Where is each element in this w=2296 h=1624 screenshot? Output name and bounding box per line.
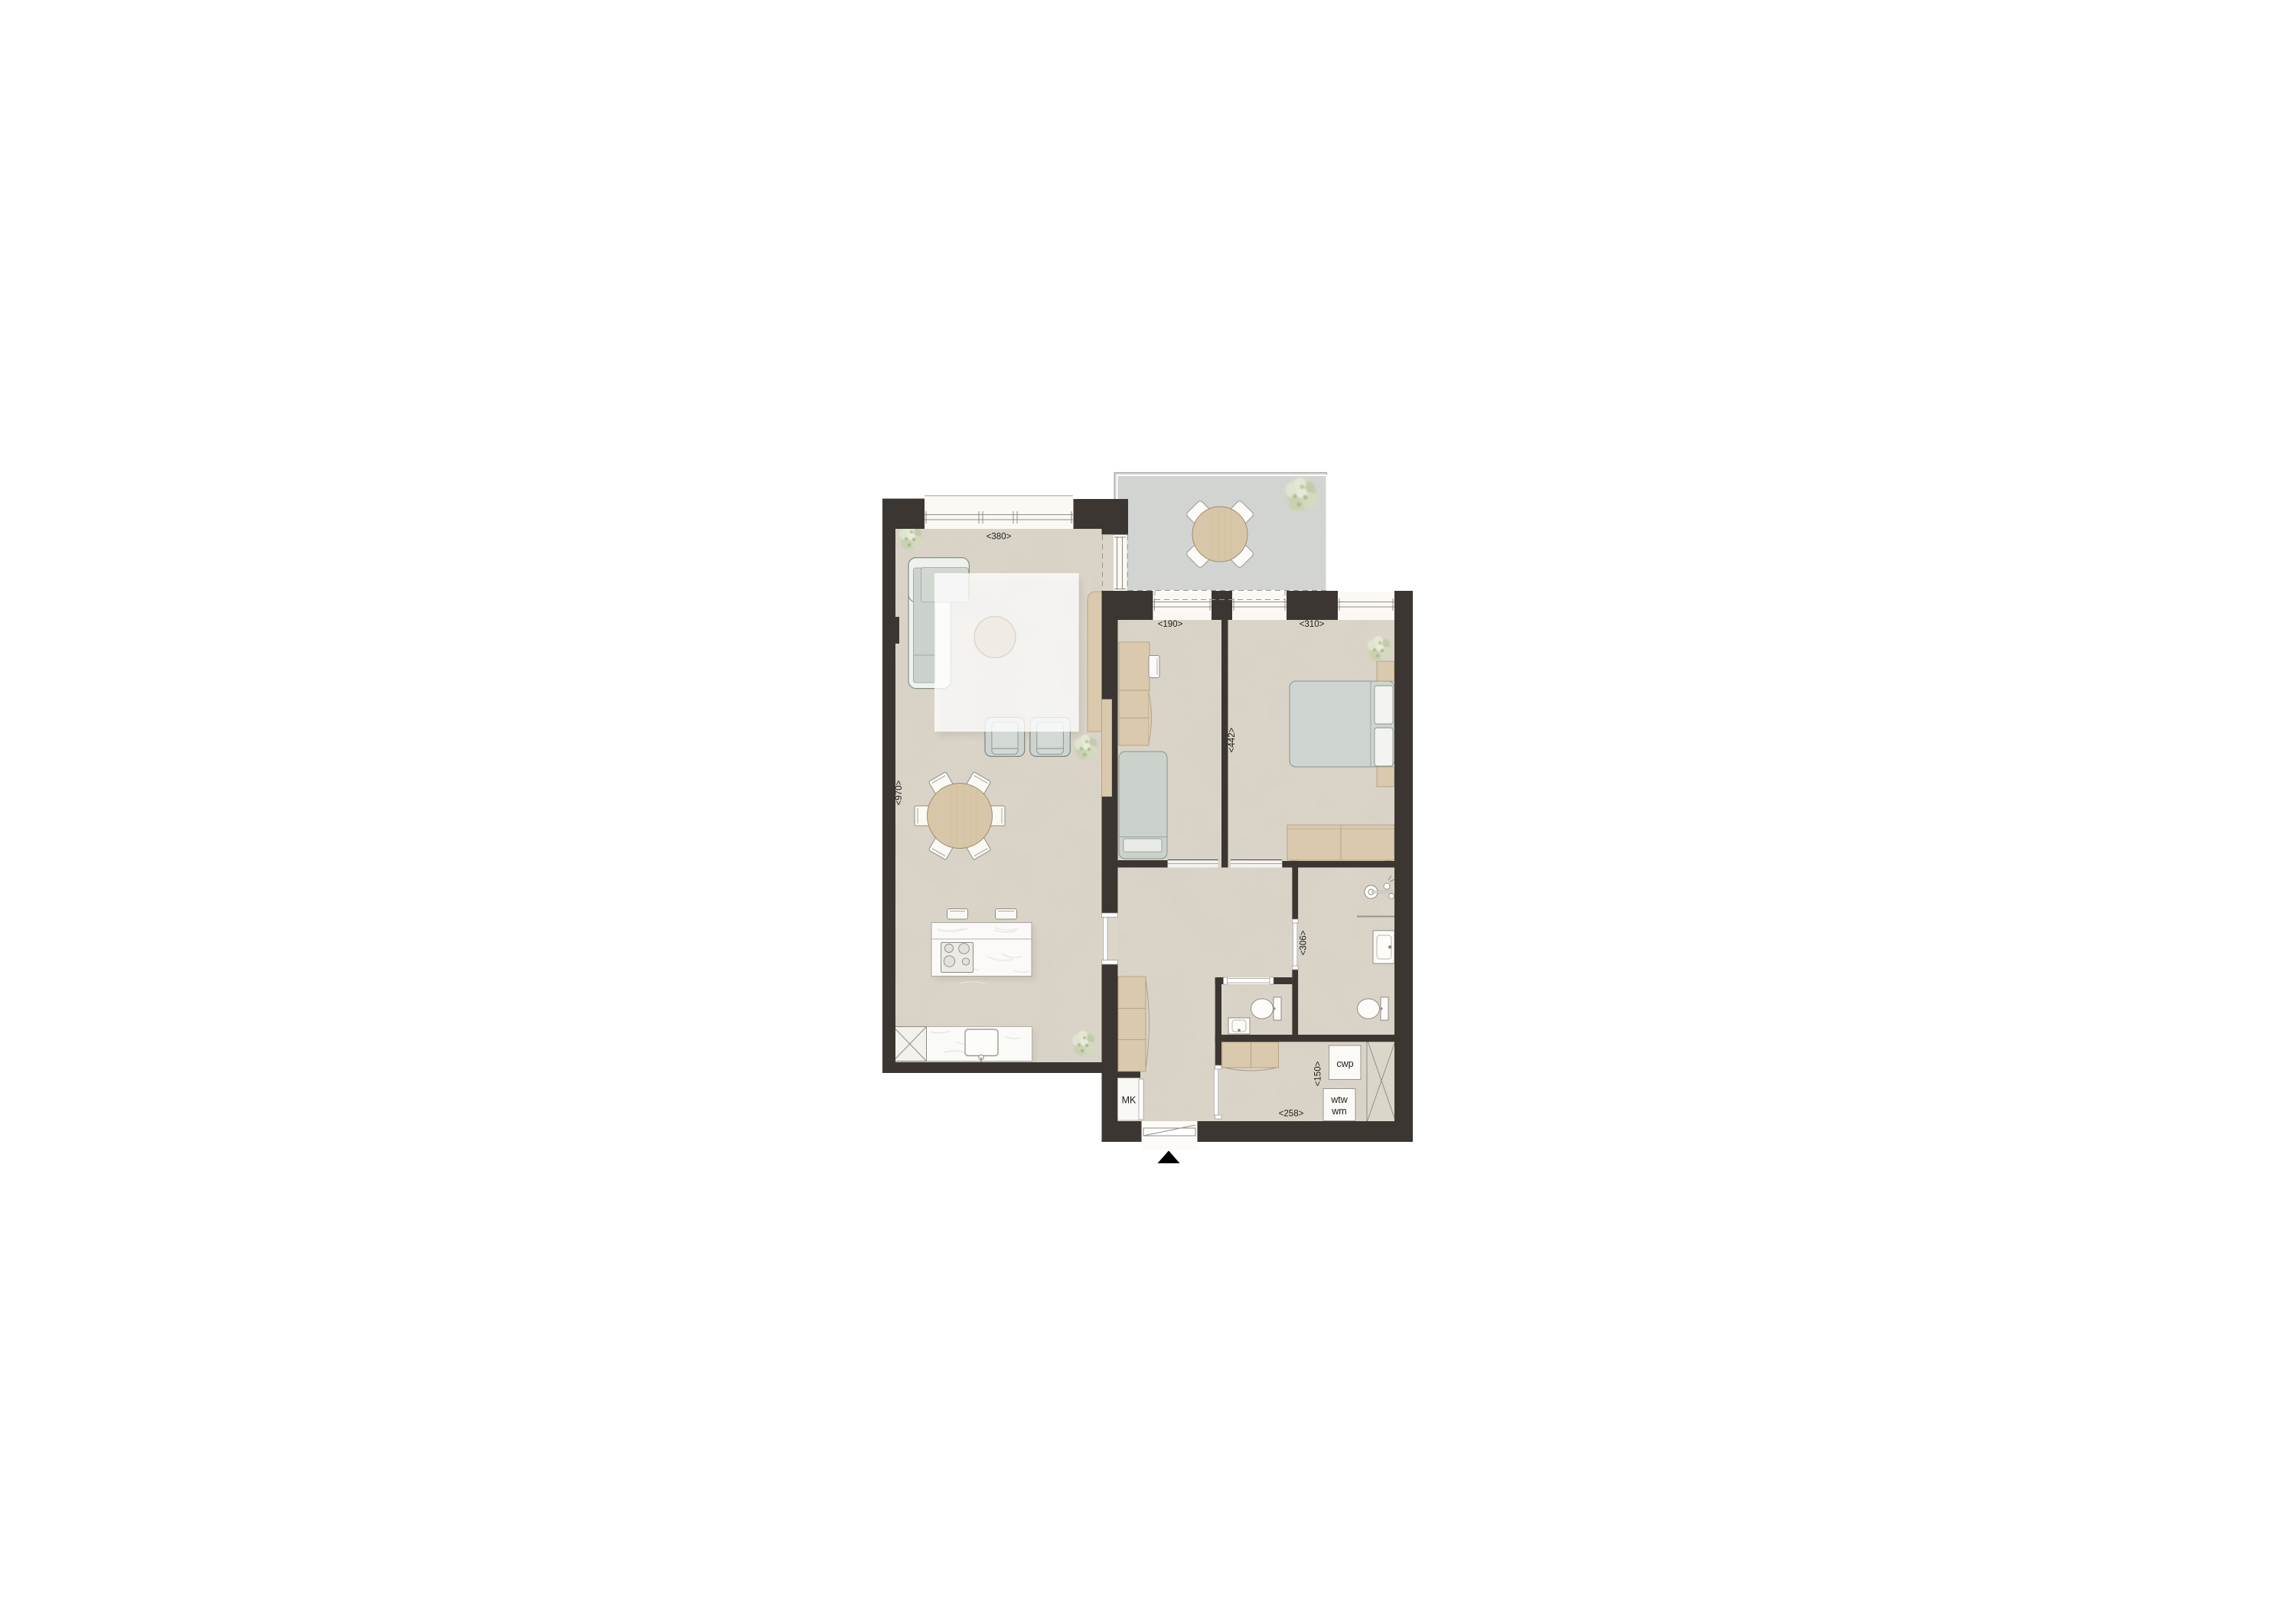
svg-text:<970>: <970> <box>895 780 904 805</box>
svg-text:MK: MK <box>1122 1095 1137 1106</box>
svg-text:<150>: <150> <box>1314 1061 1323 1086</box>
svg-text:<258>: <258> <box>1279 1110 1304 1119</box>
svg-text:cwp: cwp <box>1336 1058 1353 1069</box>
svg-text:wtw: wtw <box>1330 1094 1349 1105</box>
svg-text:<306>: <306> <box>1300 930 1309 955</box>
svg-text:<190>: <190> <box>1158 620 1183 629</box>
svg-text:<380>: <380> <box>987 533 1012 542</box>
svg-text:<442>: <442> <box>1228 727 1237 752</box>
svg-text:<310>: <310> <box>1300 620 1325 629</box>
svg-text:wm: wm <box>1331 1106 1346 1117</box>
